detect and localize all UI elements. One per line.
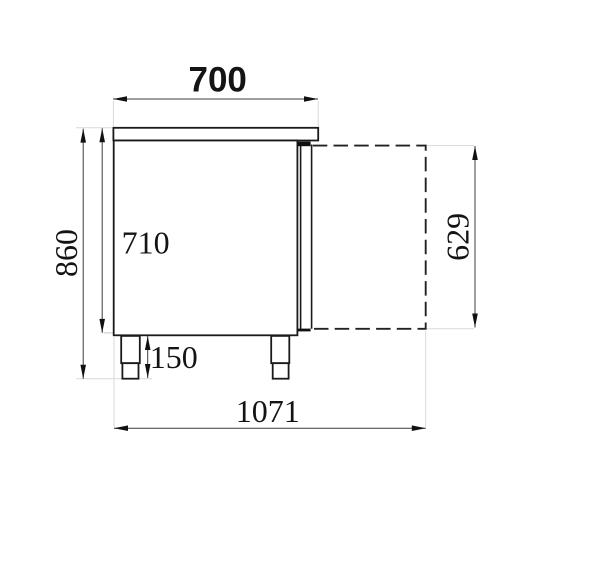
svg-text:710: 710: [122, 225, 170, 261]
svg-text:1071: 1071: [236, 393, 300, 429]
svg-text:150: 150: [150, 339, 198, 375]
svg-text:629: 629: [439, 213, 475, 261]
svg-text:700: 700: [188, 61, 246, 100]
svg-text:860: 860: [48, 229, 84, 277]
